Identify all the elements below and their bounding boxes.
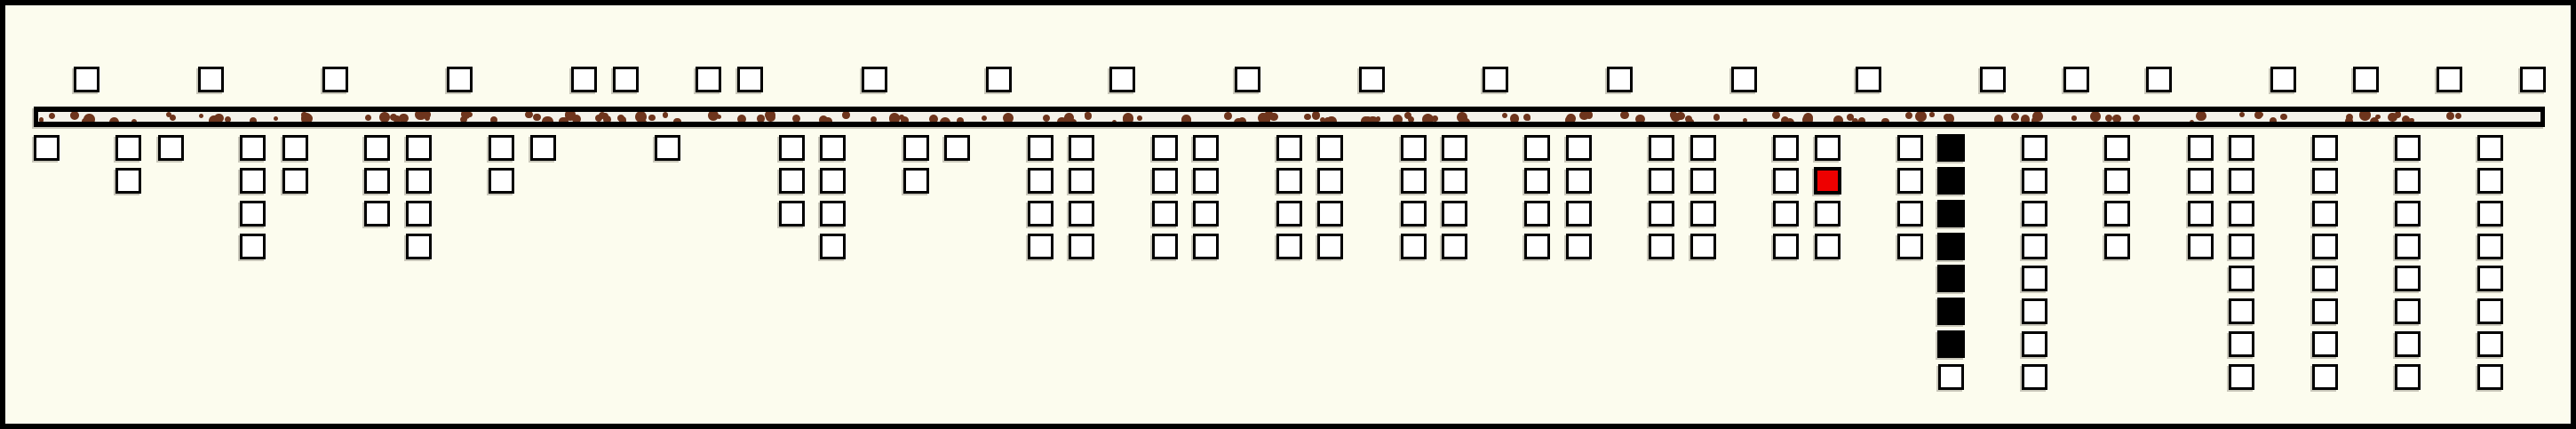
grid-square-black	[1937, 167, 1965, 195]
grid-square	[1069, 201, 1094, 226]
grid-square	[2229, 364, 2254, 390]
bar-speckle-dot	[619, 116, 626, 122]
bar-speckle-dot	[766, 113, 775, 122]
bar-speckle-dot	[1915, 112, 1927, 122]
grid-square	[1276, 201, 1302, 226]
grid-square	[1028, 135, 1053, 161]
grid-square	[240, 234, 266, 259]
bar-speckle-dot	[1043, 115, 1050, 122]
grid-square	[2312, 135, 2338, 161]
top-marker-square	[613, 67, 639, 92]
grid-square	[1152, 135, 1178, 161]
bar-speckle-dot	[199, 114, 203, 118]
bar-speckle-dot	[642, 120, 647, 122]
bar-speckle-dot	[2395, 112, 2402, 118]
grid-square	[406, 234, 432, 259]
bar-speckle-dot	[466, 112, 472, 117]
grid-square	[240, 135, 266, 161]
top-marker-square	[1980, 67, 2006, 92]
grid-square	[34, 135, 60, 161]
bar-speckle-dot	[2455, 113, 2461, 119]
bar-speckle-dot	[214, 114, 223, 122]
bar-speckle-dot	[1137, 115, 1142, 121]
grid-square	[1317, 201, 1343, 226]
bar-speckle-dot	[1181, 115, 1191, 122]
bar-speckle-dot	[871, 116, 877, 122]
top-marker-square	[1607, 67, 1633, 92]
grid-square	[1773, 201, 1799, 226]
bar-speckle-dot	[901, 116, 909, 122]
bar-speckle-dot	[274, 116, 278, 121]
bar-speckle-dot	[2375, 115, 2380, 119]
grid-square	[1649, 168, 1674, 194]
bar-speckle-dot	[365, 115, 371, 121]
bar-speckle-dot	[1502, 113, 1507, 118]
grid-square-black	[1937, 134, 1965, 162]
bar-speckle-dot	[663, 112, 669, 118]
bar-speckle-dot	[422, 112, 431, 119]
grid-square	[2395, 135, 2421, 161]
bar-speckle-dot	[49, 113, 55, 119]
grid-square	[1897, 234, 1923, 259]
bar-speckle-dot	[525, 112, 532, 118]
grid-square	[2312, 266, 2338, 291]
bar-speckle-dot	[2239, 112, 2246, 117]
grid-square	[2022, 298, 2047, 324]
grid-square	[1938, 364, 1964, 390]
grid-square-black	[1937, 330, 1965, 358]
grid-square	[2022, 135, 2047, 161]
grid-square	[2395, 266, 2421, 291]
bar-speckle-dot	[1858, 117, 1865, 122]
top-marker-square	[1731, 67, 1757, 92]
grid-square	[820, 168, 846, 194]
bar-speckle-dot	[1003, 113, 1014, 122]
bar-speckle-dot	[2090, 112, 2101, 122]
grid-square	[2022, 331, 2047, 357]
bar-speckle-dot	[390, 114, 397, 121]
grid-square	[2312, 364, 2338, 390]
grid-square	[2229, 266, 2254, 291]
bar-speckle-dot	[1579, 112, 1588, 120]
bar-speckle-dot	[250, 117, 257, 122]
grid-square	[2188, 168, 2214, 194]
grid-square	[1815, 234, 1841, 259]
bar-speckle-dot	[533, 114, 540, 121]
bar-speckle-dot	[2032, 112, 2043, 122]
top-marker-square	[696, 67, 721, 92]
grid-square	[2312, 168, 2338, 194]
grid-square	[364, 168, 390, 194]
sequence-bar-interior	[38, 112, 2540, 122]
grid-square	[1524, 201, 1550, 226]
bar-speckle-dot	[1833, 115, 1843, 122]
grid-square	[1524, 135, 1550, 161]
grid-square	[944, 135, 970, 161]
grid-square	[1773, 168, 1799, 194]
bar-speckle-dot	[823, 117, 832, 122]
top-marker-square	[2270, 67, 2296, 92]
grid-square	[1690, 135, 1716, 161]
bar-speckle-dot	[305, 115, 310, 120]
top-marker-square	[1235, 67, 1260, 92]
grid-square	[364, 201, 390, 226]
grid-square	[2395, 331, 2421, 357]
grid-square	[2229, 201, 2254, 226]
bar-speckle-dot	[1304, 114, 1311, 121]
bar-speckle-dot	[2021, 115, 2030, 122]
bar-speckle-dot	[39, 117, 44, 122]
sequence-bar	[34, 107, 2545, 127]
grid-square	[1276, 234, 1302, 259]
grid-square	[903, 168, 929, 194]
grid-square	[1028, 201, 1053, 226]
grid-square	[2229, 168, 2254, 194]
grid-square	[1442, 135, 1467, 161]
grid-square	[1069, 234, 1094, 259]
top-marker-square	[2063, 67, 2089, 92]
grid-square	[2477, 201, 2503, 226]
top-marker-square	[447, 67, 473, 92]
grid-square	[1401, 135, 1427, 161]
grid-square	[903, 135, 929, 161]
grid-square	[1690, 201, 1716, 226]
bar-speckle-dot	[1881, 118, 1888, 122]
bar-speckle-dot	[1852, 118, 1859, 122]
grid-square	[1276, 168, 1302, 194]
bar-speckle-dot	[1238, 117, 1246, 122]
grid-square	[2477, 234, 2503, 259]
bar-speckle-dot	[2254, 112, 2262, 119]
grid-square	[2312, 234, 2338, 259]
grid-square	[1193, 201, 1219, 226]
grid-square	[2395, 364, 2421, 390]
grid-square	[1566, 201, 1592, 226]
grid-square	[1815, 201, 1841, 226]
grid-square	[364, 135, 390, 161]
bar-speckle-dot	[1085, 112, 1090, 117]
grid-square	[240, 201, 266, 226]
grid-square	[2104, 135, 2130, 161]
grid-square	[1690, 168, 1716, 194]
grid-square	[1028, 234, 1053, 259]
bar-speckle-dot	[1393, 115, 1403, 122]
bar-speckle-dot	[561, 117, 568, 122]
grid-square	[1897, 168, 1923, 194]
grid-square	[406, 168, 432, 194]
bar-speckle-dot	[1269, 113, 1278, 122]
bar-speckle-dot	[572, 115, 581, 122]
bar-speckle-dot	[1772, 112, 1780, 119]
grid-square	[820, 234, 846, 259]
bar-speckle-dot	[2280, 114, 2286, 120]
bar-speckle-dot	[2345, 117, 2353, 122]
bar-speckle-dot	[2071, 115, 2076, 120]
bar-speckle-dot	[757, 115, 764, 122]
top-marker-square	[1483, 67, 1508, 92]
grid-square	[2022, 234, 2047, 259]
grid-square	[820, 201, 846, 226]
grid-square	[1317, 135, 1343, 161]
grid-square	[779, 168, 805, 194]
grid-square	[1566, 135, 1592, 161]
bar-speckle-dot	[225, 116, 231, 122]
grid-square	[2312, 201, 2338, 226]
bar-speckle-dot	[708, 112, 719, 121]
grid-square	[2477, 298, 2503, 324]
bar-speckle-dot	[1635, 115, 1645, 122]
bar-speckle-dot	[1320, 117, 1326, 122]
bar-speckle-dot	[1685, 115, 1692, 122]
feature-map-figure	[0, 0, 2576, 429]
bar-speckle-dot	[2270, 117, 2277, 122]
bar-speckle-dot	[131, 119, 137, 122]
grid-square	[2188, 135, 2214, 161]
grid-square	[1152, 201, 1178, 226]
bar-speckle-dot	[1432, 115, 1438, 122]
grid-square	[1152, 234, 1178, 259]
grid-square	[655, 135, 680, 161]
top-marker-square	[74, 67, 99, 92]
grid-square	[1649, 234, 1674, 259]
grid-square-black	[1937, 298, 1965, 325]
bar-speckle-dot	[1785, 118, 1795, 122]
grid-square	[1193, 135, 1219, 161]
grid-square	[1897, 135, 1923, 161]
bar-speckle-dot	[1929, 112, 1934, 116]
top-marker-square	[862, 67, 887, 92]
bar-speckle-dot	[929, 115, 938, 122]
bar-speckle-dot	[2402, 115, 2410, 122]
bar-speckle-dot	[542, 116, 553, 122]
bar-speckle-dot	[1260, 113, 1266, 119]
grid-square	[1152, 168, 1178, 194]
grid-square	[1442, 234, 1467, 259]
grid-square	[2104, 234, 2130, 259]
bar-speckle-dot	[1743, 118, 1747, 122]
bar-speckle-dot	[1945, 114, 1954, 122]
bar-speckle-dot	[1361, 116, 1371, 122]
bar-speckle-dot	[2112, 115, 2121, 122]
top-marker-square	[1109, 67, 1135, 92]
grid-square	[2477, 266, 2503, 291]
grid-square	[115, 168, 141, 194]
grid-square	[1566, 234, 1592, 259]
bar-speckle-dot	[982, 115, 987, 121]
top-marker-square	[986, 67, 1012, 92]
bar-speckle-dot	[1566, 114, 1576, 122]
grid-square	[1442, 201, 1467, 226]
grid-square	[1897, 201, 1923, 226]
bar-speckle-dot	[2011, 113, 2020, 122]
grid-square	[115, 135, 141, 161]
grid-square	[1401, 234, 1427, 259]
grid-square	[1524, 234, 1550, 259]
bar-speckle-dot	[70, 112, 79, 120]
grid-square	[1524, 168, 1550, 194]
grid-square	[2477, 135, 2503, 161]
top-marker-square	[1856, 67, 1881, 92]
bar-speckle-dot	[1224, 112, 1232, 120]
bar-speckle-dot	[2190, 120, 2194, 122]
grid-square	[1317, 168, 1343, 194]
top-marker-square	[2146, 67, 2172, 92]
bar-speckle-dot	[2446, 112, 2454, 120]
grid-square	[2395, 234, 2421, 259]
bar-speckle-dot	[109, 117, 119, 122]
grid-square	[158, 135, 184, 161]
bar-speckle-dot	[792, 115, 800, 122]
grid-square	[2229, 331, 2254, 357]
bar-speckle-dot	[2196, 112, 2206, 121]
grid-square	[2395, 298, 2421, 324]
grid-square	[779, 135, 805, 161]
grid-square	[2312, 331, 2338, 357]
bar-speckle-dot	[842, 112, 850, 119]
grid-square	[1773, 234, 1799, 259]
top-marker-square	[2437, 67, 2462, 92]
grid-square	[1193, 168, 1219, 194]
grid-square	[820, 135, 846, 161]
grid-square-black	[1937, 200, 1965, 227]
top-marker-square	[322, 67, 348, 92]
grid-square	[2395, 168, 2421, 194]
grid-square	[2312, 298, 2338, 324]
bar-speckle-dot	[673, 118, 680, 122]
grid-square	[1317, 234, 1343, 259]
top-marker-square	[571, 67, 597, 92]
bar-speckle-dot	[1994, 115, 2003, 122]
grid-square	[1193, 234, 1219, 259]
bar-speckle-dot	[1620, 112, 1629, 119]
grid-square	[2477, 168, 2503, 194]
bar-speckle-dot	[1064, 113, 1074, 122]
grid-square	[1773, 135, 1799, 161]
bar-speckle-dot	[83, 114, 95, 122]
bar-speckle-dot	[2133, 115, 2140, 122]
grid-square	[1815, 135, 1841, 161]
bar-speckle-dot	[1510, 114, 1520, 122]
grid-square	[406, 201, 432, 226]
grid-square	[2395, 201, 2421, 226]
bar-speckle-dot	[603, 115, 611, 122]
grid-square	[2188, 201, 2214, 226]
bar-speckle-dot	[2359, 112, 2371, 121]
grid-square	[282, 135, 308, 161]
bar-speckle-dot	[1905, 112, 1912, 119]
grid-square-red	[1814, 167, 1841, 195]
grid-square	[2104, 201, 2130, 226]
bar-speckle-dot	[648, 115, 656, 122]
bar-speckle-dot	[1803, 113, 1813, 122]
grid-square	[2022, 168, 2047, 194]
top-marker-square	[2520, 67, 2546, 92]
bar-speckle-dot	[1112, 120, 1117, 122]
grid-square	[282, 168, 308, 194]
grid-square	[2229, 135, 2254, 161]
top-marker-square	[737, 67, 763, 92]
grid-square	[1649, 135, 1674, 161]
top-marker-square	[1359, 67, 1385, 92]
grid-square	[489, 168, 514, 194]
grid-square	[779, 201, 805, 226]
bar-speckle-dot	[957, 117, 964, 122]
grid-square	[406, 135, 432, 161]
bar-speckle-dot	[1462, 118, 1470, 122]
grid-square	[1442, 168, 1467, 194]
bar-speckle-dot	[399, 114, 408, 122]
grid-square	[1276, 135, 1302, 161]
grid-square	[1566, 168, 1592, 194]
grid-square	[2104, 168, 2130, 194]
grid-square	[1069, 135, 1094, 161]
grid-square	[530, 135, 556, 161]
bar-speckle-dot	[379, 112, 391, 122]
top-marker-square	[2353, 67, 2379, 92]
grid-square	[1401, 201, 1427, 226]
bar-speckle-dot	[1123, 114, 1133, 122]
grid-square	[2022, 266, 2047, 291]
grid-square	[2022, 364, 2047, 390]
grid-square	[1649, 201, 1674, 226]
bar-speckle-dot	[2105, 115, 2112, 122]
grid-square	[2477, 331, 2503, 357]
grid-square	[2188, 234, 2214, 259]
grid-square	[1069, 168, 1094, 194]
grid-square	[489, 135, 514, 161]
bar-speckle-dot	[940, 117, 950, 122]
grid-square-black	[1937, 265, 1965, 292]
bar-speckle-dot	[490, 116, 497, 122]
grid-square	[2477, 364, 2503, 390]
bar-speckle-dot	[737, 115, 746, 122]
grid-square	[240, 168, 266, 194]
top-marker-square	[198, 67, 224, 92]
bar-speckle-dot	[1671, 113, 1681, 122]
bar-speckle-dot	[1523, 114, 1530, 121]
grid-square	[2229, 298, 2254, 324]
grid-square-black	[1937, 233, 1965, 260]
bar-speckle-dot	[1713, 114, 1721, 121]
grid-square	[1690, 234, 1716, 259]
grid-square	[1401, 168, 1427, 194]
grid-square	[2022, 201, 2047, 226]
grid-square	[1028, 168, 1053, 194]
grid-square	[2229, 234, 2254, 259]
bar-speckle-dot	[1326, 116, 1337, 122]
